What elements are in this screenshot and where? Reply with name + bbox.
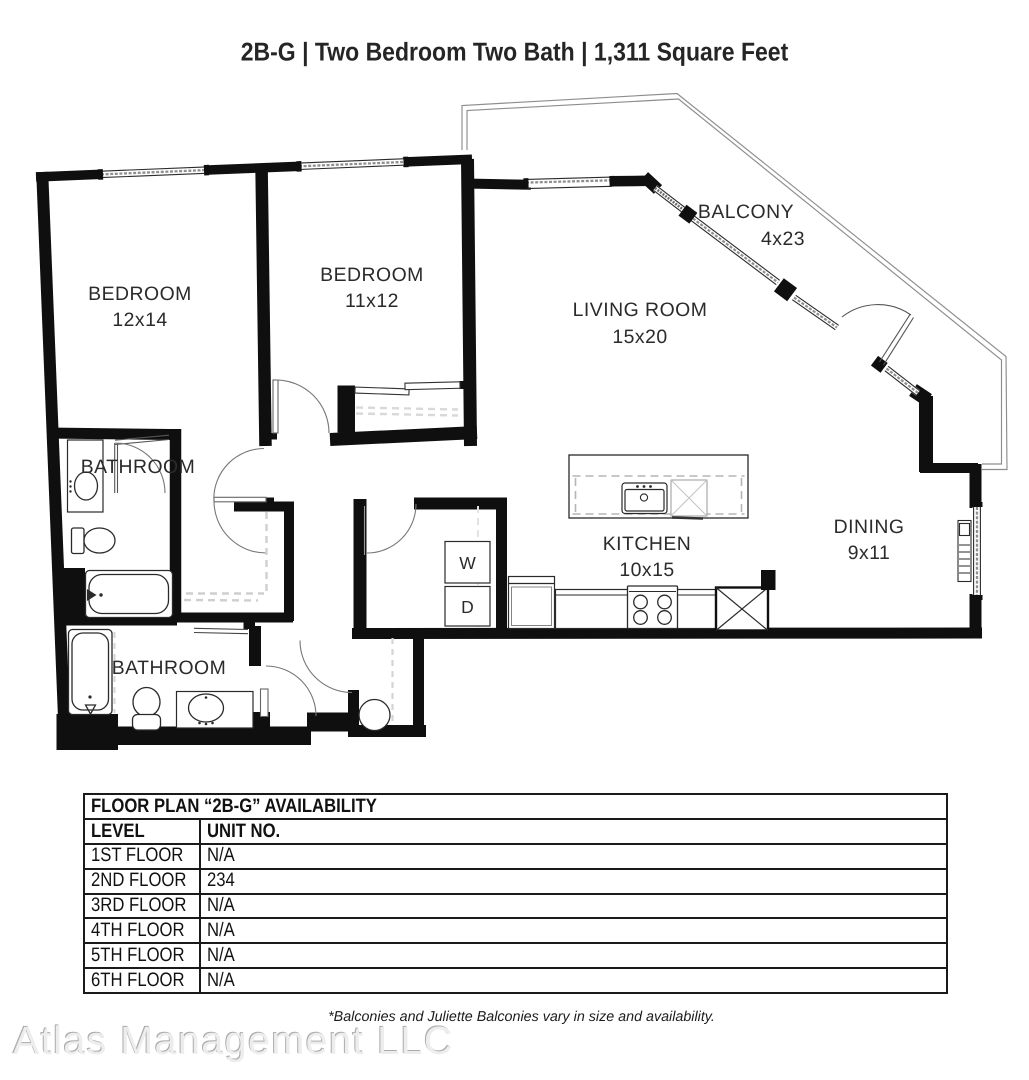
svg-text:11x12: 11x12 (345, 290, 399, 312)
svg-text:BEDROOM: BEDROOM (88, 283, 192, 305)
svg-text:BALCONY: BALCONY (698, 201, 794, 223)
svg-text:4x23: 4x23 (761, 228, 805, 250)
svg-text:D: D (461, 597, 474, 617)
svg-text:W: W (459, 553, 476, 573)
svg-text:9x11: 9x11 (848, 542, 891, 564)
svg-text:LIVING ROOM: LIVING ROOM (573, 299, 708, 321)
svg-text:BATHROOM: BATHROOM (112, 657, 227, 679)
svg-text:BATHROOM: BATHROOM (81, 456, 196, 478)
svg-text:12x14: 12x14 (112, 309, 167, 331)
svg-text:15x20: 15x20 (612, 326, 667, 348)
svg-text:10x15: 10x15 (619, 559, 674, 581)
svg-text:KITCHEN: KITCHEN (603, 533, 692, 555)
svg-text:DINING: DINING (834, 516, 905, 538)
svg-text:BEDROOM: BEDROOM (320, 264, 424, 286)
